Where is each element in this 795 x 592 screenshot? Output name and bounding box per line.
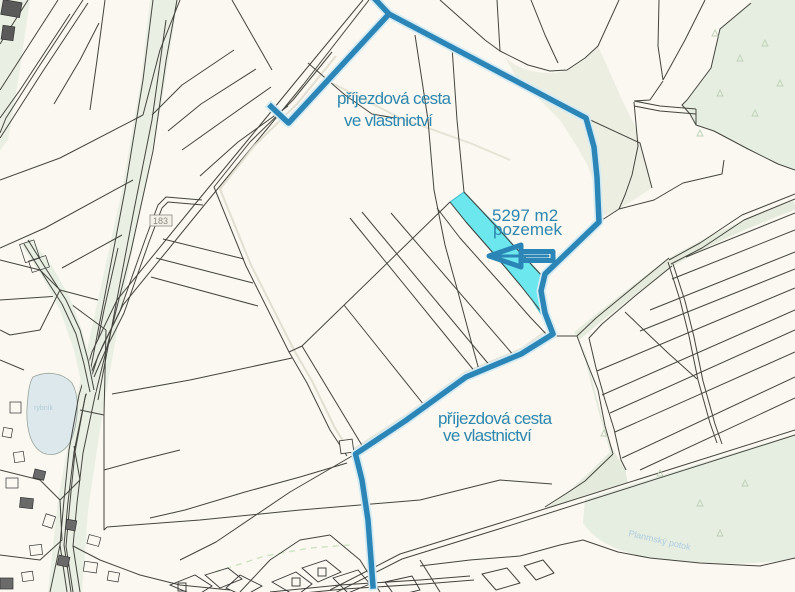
svg-text:pozemek: pozemek	[493, 220, 562, 239]
svg-text:183: 183	[153, 216, 168, 226]
svg-text:ve vlastnictví: ve vlastnictví	[443, 426, 532, 445]
svg-text:rybník: rybník	[34, 405, 54, 412]
svg-text:ve vlastnictví: ve vlastnictví	[344, 111, 433, 130]
svg-text:příjezdová cesta: příjezdová cesta	[337, 89, 452, 108]
